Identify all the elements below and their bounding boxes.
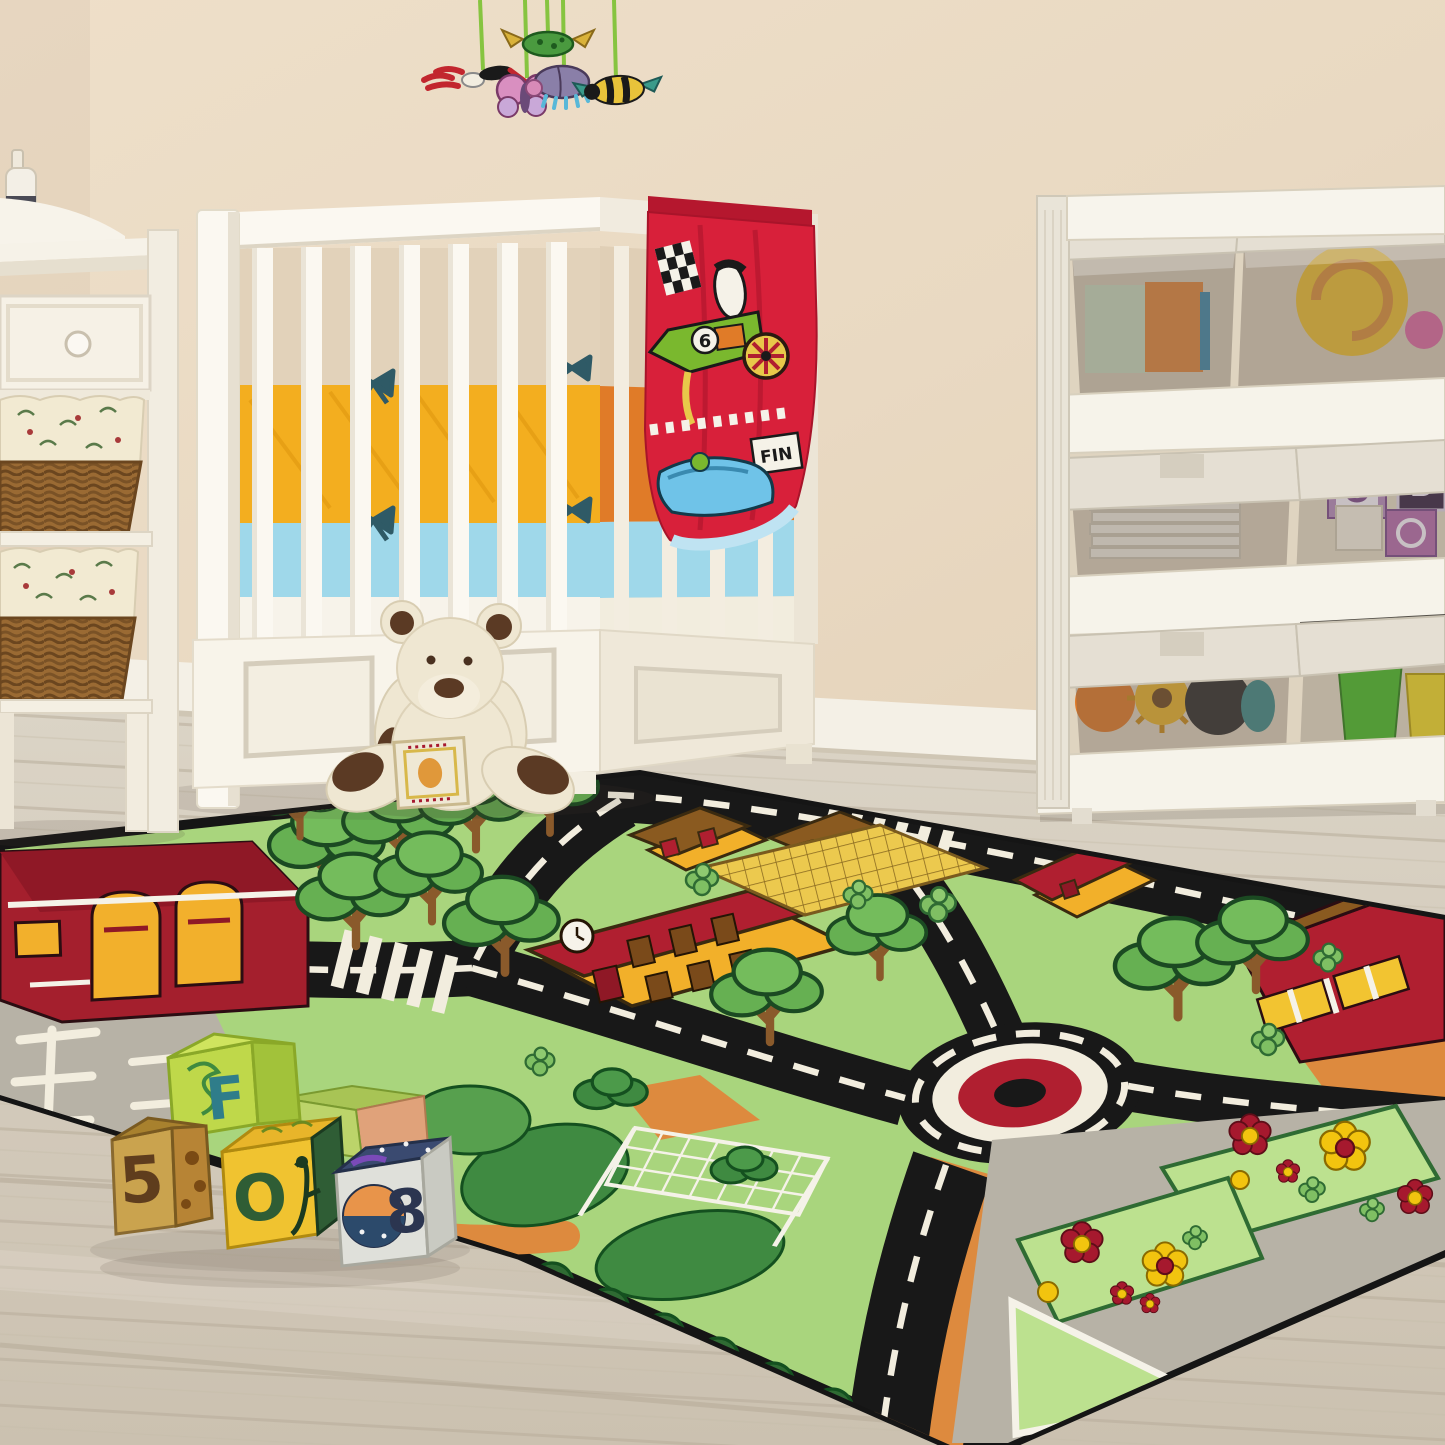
shelf-top-board: [1067, 186, 1445, 240]
block-letter-o: O: [222, 1118, 346, 1248]
toy-shelf-unit: O B: [1037, 186, 1445, 824]
changing-table-drawer: [0, 296, 150, 390]
changing-table-leg: [126, 713, 148, 831]
block-number-8-text: 8: [383, 1176, 430, 1249]
shelf-bin-middle-right: O B: [1296, 440, 1445, 578]
block-letter-o-text: O: [230, 1160, 291, 1238]
block-letter-f-text: F: [203, 1062, 250, 1134]
teddy-block: [394, 738, 468, 809]
block-number-5-text: 5: [117, 1143, 167, 1220]
block-number-8: 8: [336, 1138, 456, 1266]
storage-basket-bottom: [0, 548, 138, 700]
drawer-knob: [66, 332, 90, 356]
shelf-bin-bottom-left: [1062, 624, 1300, 755]
teddy-nose: [434, 678, 464, 698]
rug-fire-station: [0, 842, 308, 1022]
nursery-room-photo: 6 FIN: [0, 0, 1445, 1445]
red-blanket: 6 FIN: [645, 196, 817, 547]
race-car-number: 6: [699, 331, 712, 352]
storage-basket-top: [0, 396, 144, 534]
shelf-bin-middle-left: [1062, 448, 1300, 580]
shelf-bin-bottom-right: [1296, 614, 1445, 752]
block-number-5: 5: [112, 1118, 212, 1234]
